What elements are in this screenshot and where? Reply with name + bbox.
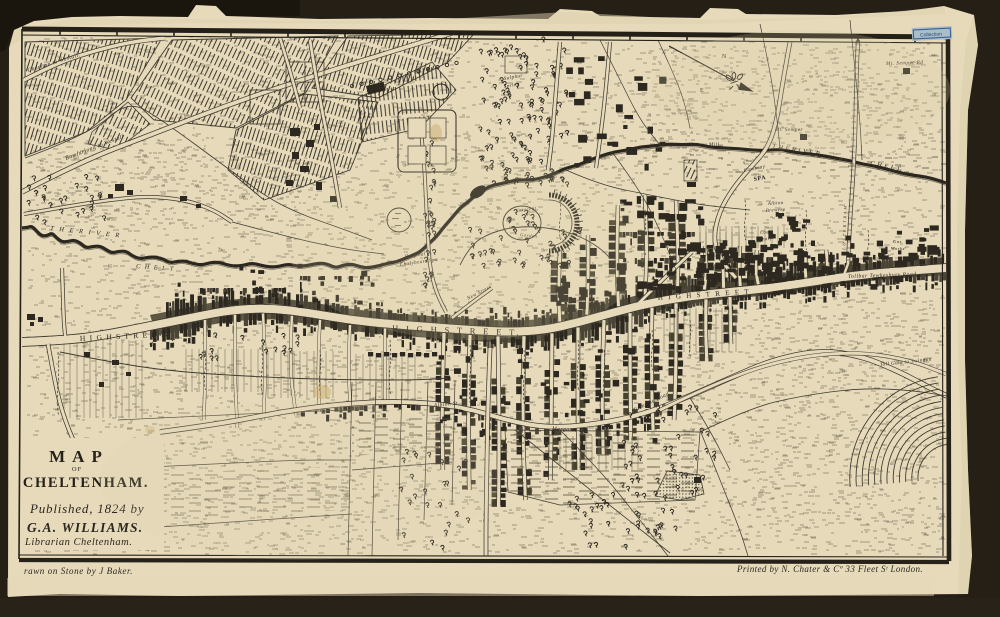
svg-text:G.A. WILLIAMS.: G.A. WILLIAMS. <box>27 520 143 535</box>
svg-text:OF: OF <box>72 466 82 473</box>
svg-text:Printed by N. Chater & Cº 33 F: Printed by N. Chater & Cº 33 Fleet Sᵗ Lo… <box>736 564 923 574</box>
svg-text:Works: Works <box>891 246 905 251</box>
svg-text:Collection: Collection <box>920 31 942 38</box>
svg-text:Alstone Mill: Alstone Mill <box>687 142 720 148</box>
svg-text:Gas: Gas <box>893 239 902 244</box>
svg-text:rawn on Stone by J Baker.: rawn on Stone by J Baker. <box>24 566 133 576</box>
svg-text:St: St <box>655 369 660 374</box>
svg-text:MAP: MAP <box>49 447 109 466</box>
svg-text:Librarian Cheltenham.: Librarian Cheltenham. <box>24 537 132 548</box>
